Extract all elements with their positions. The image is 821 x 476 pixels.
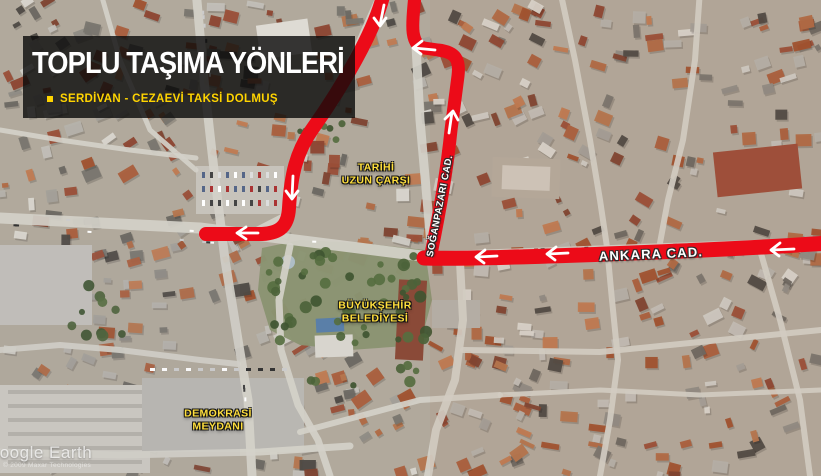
label-tarihi-uzun-carsi: TARİHİ UZUN ÇARŞI [342, 162, 411, 187]
label-demokrasi-meydani: DEMOKRASİ MEYDANI [184, 408, 252, 433]
route-legend-label: SERDİVAN - CEZAEVİ TAKSİ DOLMUŞ [60, 93, 278, 105]
title-panel: TOPLU TAŞIMA YÖNLERİ SERDİVAN - CEZAEVİ … [23, 36, 355, 118]
route-legend: SERDİVAN - CEZAEVİ TAKSİ DOLMUŞ [47, 93, 278, 105]
google-earth-watermark: Google Earth [0, 443, 92, 463]
route-bullet-icon [47, 96, 53, 102]
infographic-frame: TOPLU TAŞIMA YÖNLERİ SERDİVAN - CEZAEVİ … [0, 0, 821, 476]
page-title: TOPLU TAŞIMA YÖNLERİ [32, 45, 344, 81]
imagery-copyright: © 2009 Maxar Technologies [3, 462, 91, 469]
label-buyuksehir-belediyesi: BÜYÜKŞEHİR BELEDİYESİ [338, 300, 411, 325]
